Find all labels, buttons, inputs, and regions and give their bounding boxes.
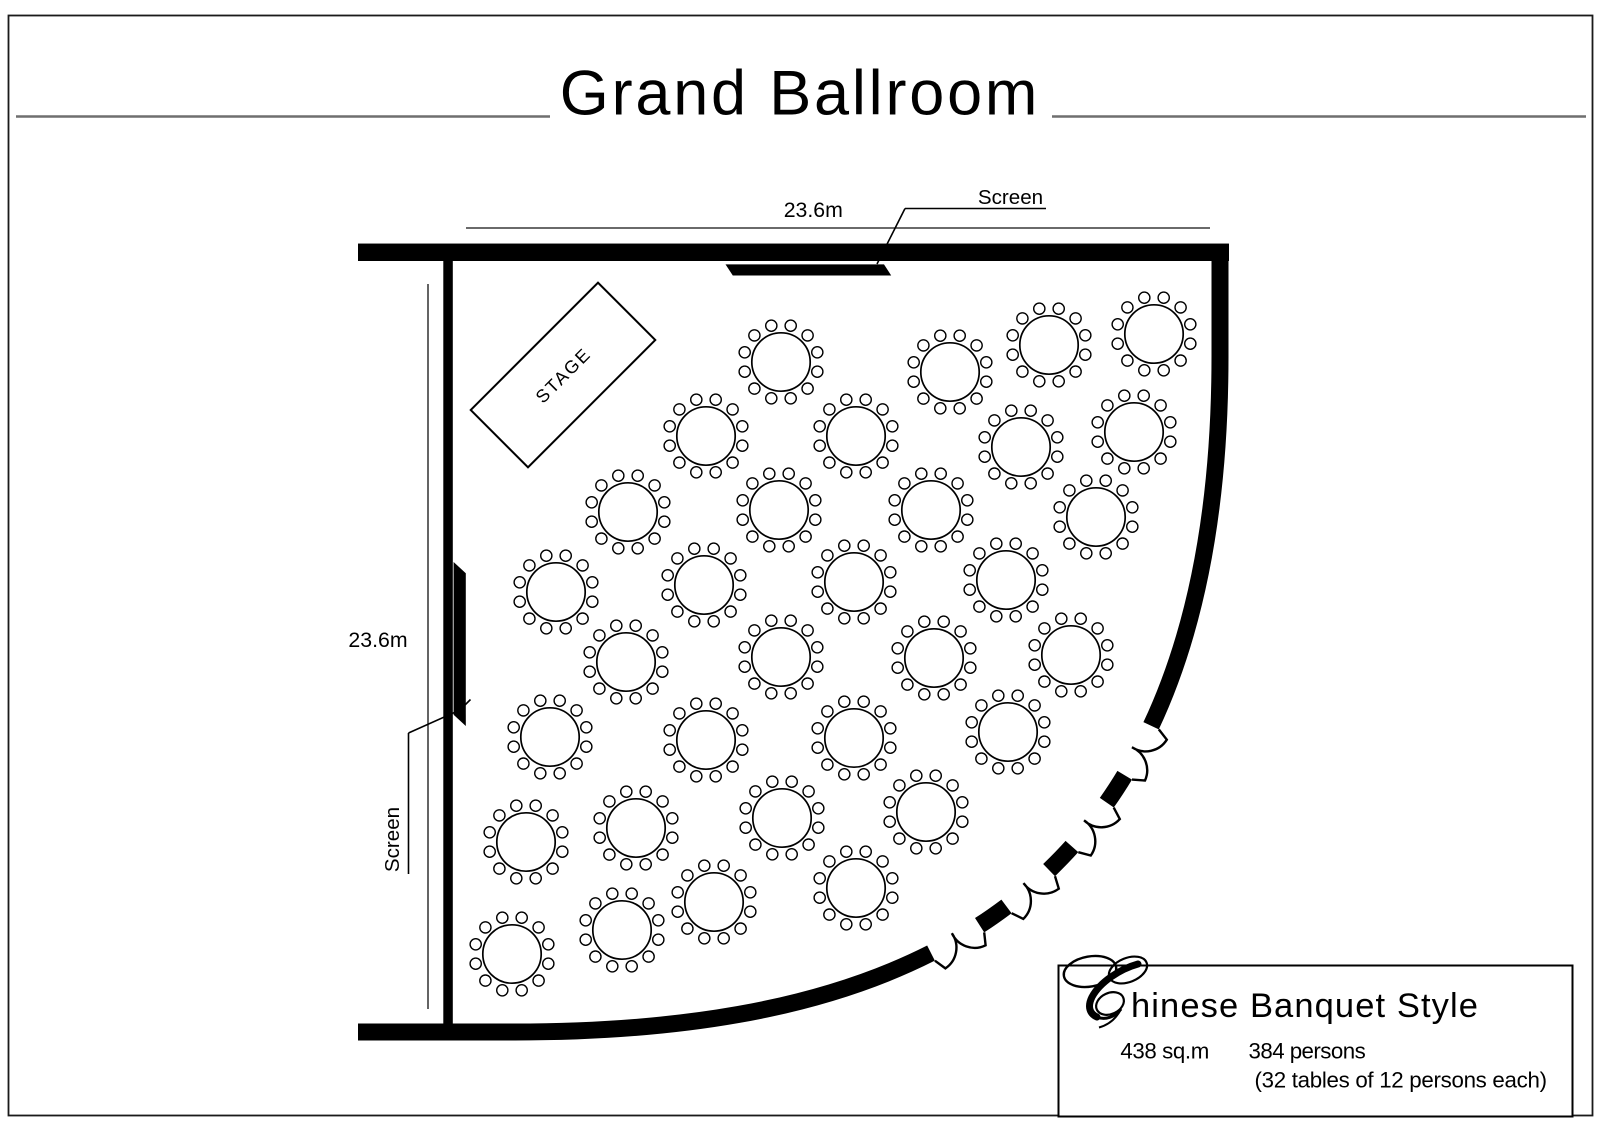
svg-text:(32 tables of 12 persons each): (32 tables of 12 persons each): [1255, 1068, 1547, 1093]
svg-text:Grand Ballroom: Grand Ballroom: [560, 59, 1040, 129]
svg-text:438 sq.m: 438 sq.m: [1120, 1039, 1209, 1064]
svg-text:hinese Banquet Style: hinese Banquet Style: [1131, 987, 1479, 1025]
svg-text:384 persons: 384 persons: [1249, 1039, 1366, 1064]
svg-text:Screen: Screen: [381, 807, 404, 872]
svg-text:Screen: Screen: [978, 186, 1043, 209]
svg-text:23.6m: 23.6m: [348, 628, 407, 652]
svg-text:23.6m: 23.6m: [784, 198, 843, 222]
